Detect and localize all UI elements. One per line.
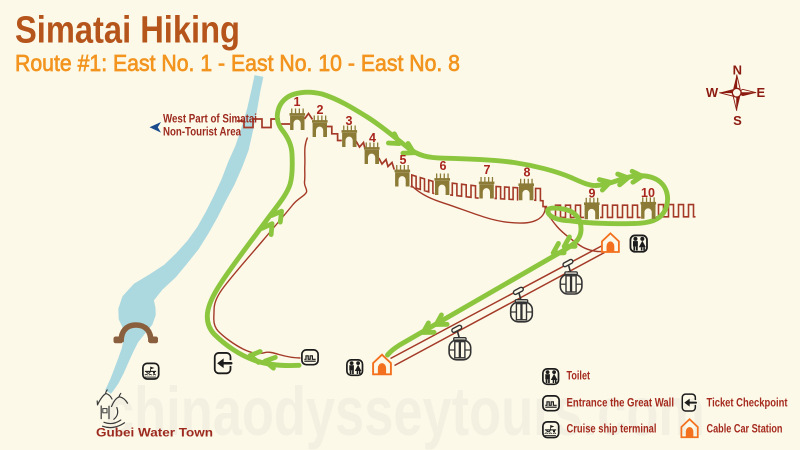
svg-text:N: N xyxy=(733,63,742,78)
svg-text:5: 5 xyxy=(400,153,407,167)
svg-text:3: 3 xyxy=(346,114,353,128)
svg-text:Gubei Water Town: Gubei Water Town xyxy=(96,426,213,440)
svg-text:Toilet: Toilet xyxy=(567,369,591,383)
svg-text:6: 6 xyxy=(440,159,447,173)
svg-text:8: 8 xyxy=(524,165,531,179)
svg-text:2: 2 xyxy=(317,103,324,117)
svg-text:1: 1 xyxy=(294,95,301,109)
svg-text:Ticket Checkpoint: Ticket Checkpoint xyxy=(707,396,788,410)
svg-text:9: 9 xyxy=(589,187,596,201)
svg-text:Cable Car Station: Cable Car Station xyxy=(707,422,783,436)
svg-text:S: S xyxy=(733,113,742,128)
svg-text:Route #1: East No. 1 - East No: Route #1: East No. 1 - East No. 10 - Eas… xyxy=(15,50,460,76)
svg-text:4: 4 xyxy=(369,131,376,145)
svg-text:10: 10 xyxy=(641,186,655,200)
svg-text:W: W xyxy=(706,85,719,100)
svg-text:Entrance the Great Wall: Entrance the Great Wall xyxy=(567,396,675,410)
svg-text:Cruise ship terminal: Cruise ship terminal xyxy=(567,422,657,436)
svg-text:Simatai Hiking: Simatai Hiking xyxy=(15,10,240,52)
svg-text:Non-Tourist Area: Non-Tourist Area xyxy=(163,124,241,138)
svg-text:E: E xyxy=(756,85,765,100)
svg-text:7: 7 xyxy=(484,163,491,177)
